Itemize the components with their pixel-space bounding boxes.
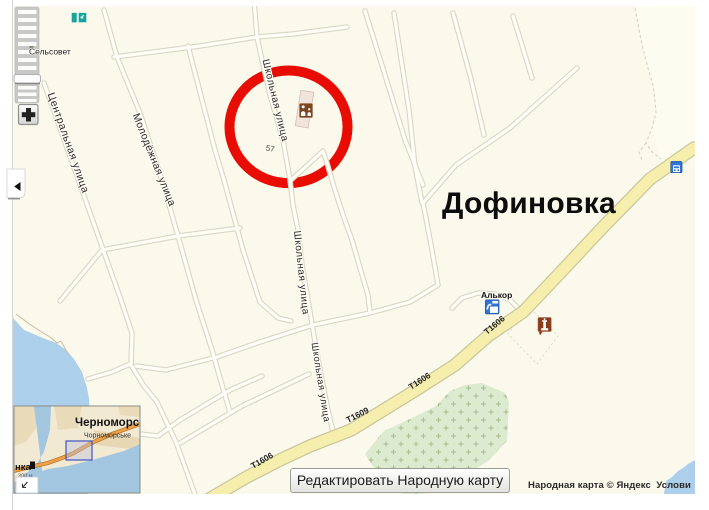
- svg-text:Алькор: Алькор: [481, 290, 512, 300]
- svg-text:нка: нка: [15, 462, 31, 473]
- svg-text:Сельсовет: Сельсовет: [29, 47, 71, 57]
- svg-text:57: 57: [265, 144, 276, 154]
- svg-text:Чорноморське: Чорноморське: [84, 433, 131, 440]
- svg-text:Дофиновка: Дофиновка: [442, 187, 616, 220]
